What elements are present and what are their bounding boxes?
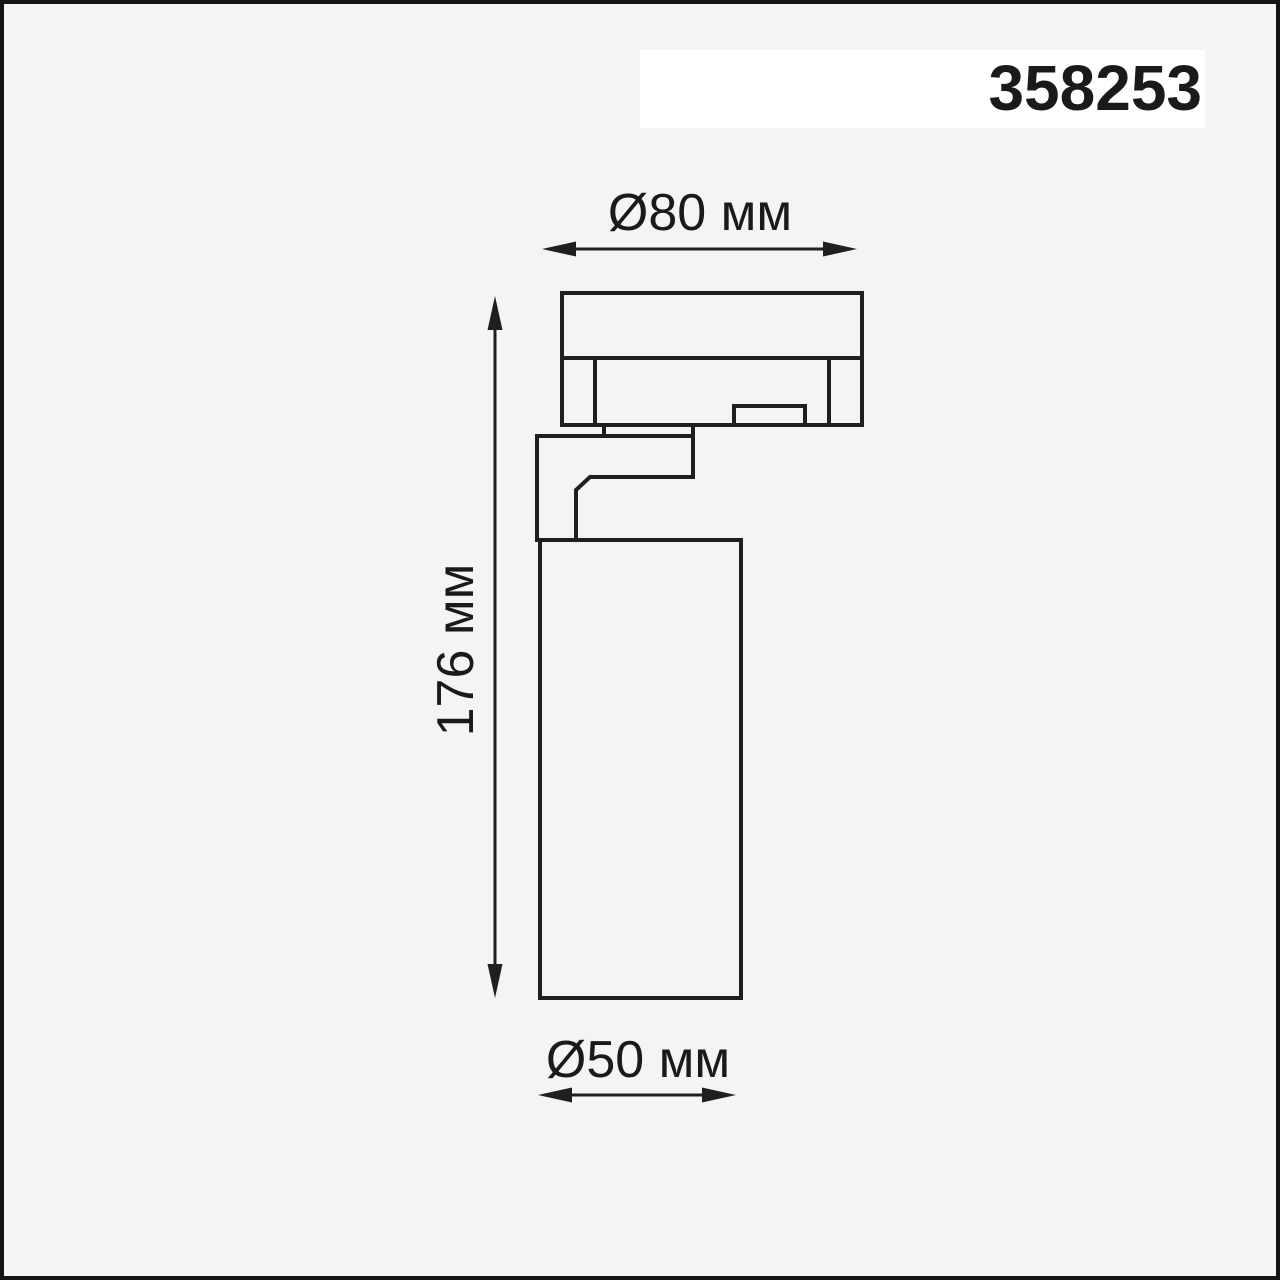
arm-right-step bbox=[576, 425, 693, 540]
arrowhead-left-icon bbox=[538, 1088, 572, 1103]
arrowhead-left-icon bbox=[542, 242, 576, 257]
arrowhead-down-icon bbox=[488, 964, 503, 998]
arrowhead-right-icon bbox=[823, 242, 857, 257]
dimension-bottom-diameter: Ø50 мм bbox=[538, 1031, 736, 1103]
adapter-switch-block bbox=[734, 406, 805, 425]
dimension-left-height: 176 мм bbox=[427, 296, 503, 998]
dimension-label-left-height: 176 мм bbox=[427, 564, 485, 737]
arrowhead-right-icon bbox=[702, 1088, 736, 1103]
lamp-body-sides-bottom bbox=[540, 540, 741, 998]
dimension-label-bottom-diameter: Ø50 мм bbox=[546, 1031, 730, 1089]
lamp-body-outline bbox=[537, 540, 741, 998]
track-adapter-outline bbox=[562, 293, 862, 425]
arrowhead-up-icon bbox=[488, 296, 503, 330]
dimension-label-top-width: Ø80 мм bbox=[608, 184, 792, 242]
mounting-arm-outline bbox=[537, 425, 693, 540]
fixture-technical-drawing: Ø80 мм 176 мм Ø50 мм bbox=[0, 0, 1280, 1280]
dimension-top-width: Ø80 мм bbox=[542, 184, 857, 257]
